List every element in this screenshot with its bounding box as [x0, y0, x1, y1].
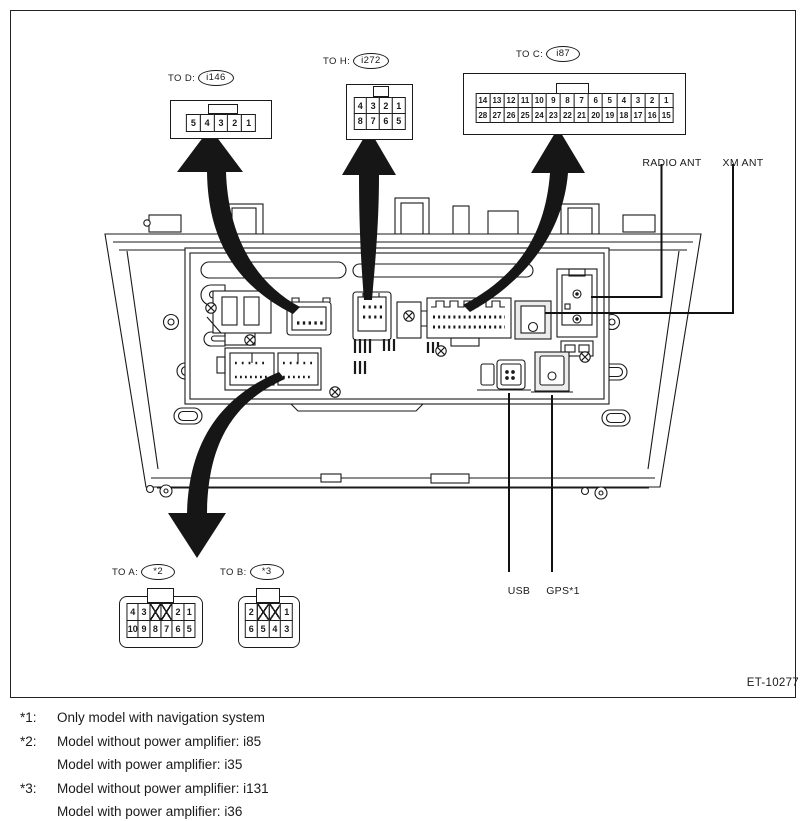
pin-cell: 25 [517, 107, 532, 123]
pin-cell: 5 [392, 113, 406, 130]
wiring-diagram-page: TO D: i146 54321 TO H: i272 43218765 TO … [0, 0, 804, 821]
footnote-row: *3:Model without power amplifier: i131Mo… [20, 777, 269, 821]
pin-cell: 23 [546, 107, 561, 123]
pin-cell: 8 [560, 93, 575, 109]
footnote-lines: Only model with navigation system [57, 706, 265, 730]
connector-h-to-label: TO H: [323, 56, 350, 67]
connector-c-pinout: 1413121110987654321282726252423222120191… [463, 73, 686, 135]
connector-a-to-label: TO A: [112, 567, 138, 578]
pin-cell: 9 [546, 93, 561, 109]
pin-row: 4321 [126, 603, 195, 621]
pin-cell: 1 [392, 97, 406, 114]
pin-row: 6543 [245, 620, 293, 638]
footnote-line: Only model with navigation system [57, 706, 265, 730]
pin-cell: 14 [475, 93, 490, 109]
pin-cell: 2 [644, 93, 659, 109]
pin-cell: 5 [602, 93, 617, 109]
pin-cell: 13 [489, 93, 504, 109]
pin-cell: 24 [532, 107, 547, 123]
unit-connector-xm-ant [515, 301, 551, 339]
footnote-marker: *3: [20, 777, 57, 821]
footnote-line: Model without power amplifier: i131 [57, 777, 269, 801]
pin-cell: 15 [659, 107, 674, 123]
connector-a-ref-oval: *2 [141, 564, 175, 580]
connector-h-ref-oval: i272 [353, 53, 389, 69]
figure-id: ET-10277 [651, 677, 799, 689]
pin-cell: 27 [489, 107, 504, 123]
pin-cell: 6 [588, 93, 603, 109]
pin-cell: 3 [214, 114, 229, 132]
connector-b-pins: 216543 [245, 603, 293, 638]
pin-cell: 20 [588, 107, 603, 123]
connector-c-to-label: TO C: [516, 49, 543, 60]
diagram-border-frame: TO D: i146 54321 TO H: i272 43218765 TO … [10, 10, 796, 698]
pin-cell: 4 [200, 114, 215, 132]
pin-cell: 1 [241, 114, 256, 132]
footnote-line: Model with power amplifier: i35 [57, 753, 261, 777]
pin-row: 8765 [353, 113, 405, 130]
footnote-row: *2:Model without power amplifier: i85Mod… [20, 730, 269, 777]
pin-cell: 7 [574, 93, 589, 109]
pin-row: 1413121110987654321 [475, 93, 674, 109]
pin-cell: 22 [560, 107, 575, 123]
unit-connector-gps [531, 352, 573, 392]
connector-a-caption: TO A: *2 [112, 564, 175, 580]
radio-ant-label: RADIO ANT [637, 157, 707, 169]
footnote-marker: *1: [20, 706, 57, 730]
pin-cell: 5 [183, 620, 196, 638]
footnotes: *1:Only model with navigation system*2:M… [20, 706, 269, 821]
pin-cell: 3 [280, 620, 293, 638]
connector-d-pins: 54321 [186, 114, 256, 132]
pin-cell: 12 [503, 93, 518, 109]
connector-c-ref-oval: i87 [546, 46, 580, 62]
connector-a-pinout: 43211098765 [119, 596, 203, 648]
usb-label: USB [505, 585, 533, 597]
connector-c-pins: 1413121110987654321282726252423222120191… [475, 93, 674, 123]
connector-h-pinout: 43218765 [346, 84, 413, 140]
pin-cell: 17 [630, 107, 645, 123]
connector-c-caption: TO C: i87 [516, 46, 580, 62]
connector-b-caption: TO B: *3 [220, 564, 284, 580]
pin-row: 4321 [353, 97, 405, 114]
connector-d-caption: TO D: i146 [168, 70, 234, 86]
connector-d-pinout: 54321 [170, 100, 272, 139]
gps-label: GPS*1 [542, 585, 584, 597]
connector-b-key-tab [256, 588, 280, 603]
unit-connector-usb [477, 360, 531, 390]
pin-cell: 28 [475, 107, 490, 123]
pin-cell: 21 [574, 107, 589, 123]
pin-cell: 1 [659, 93, 674, 109]
pin-cell: 11 [517, 93, 532, 109]
pin-cell: 26 [503, 107, 518, 123]
connector-d-to-label: TO D: [168, 73, 195, 84]
connector-b-pinout: 216543 [238, 596, 300, 648]
footnote-lines: Model without power amplifier: i85Model … [57, 730, 261, 777]
connector-b-ref-oval: *3 [250, 564, 284, 580]
connector-h-pins: 43218765 [353, 97, 405, 130]
pin-cell: 10 [532, 93, 547, 109]
connector-h-key-tab [373, 86, 389, 97]
pin-cell: 1 [280, 603, 293, 621]
xm-ant-label: XM ANT [720, 157, 766, 169]
pin-row: 2827262524232221201918171615 [475, 107, 674, 123]
footnote-row: *1:Only model with navigation system [20, 706, 269, 730]
pin-cell: 19 [602, 107, 617, 123]
connector-a-pins: 43211098765 [126, 603, 195, 638]
footnote-line: Model without power amplifier: i85 [57, 730, 261, 754]
pin-row: 21 [245, 603, 293, 621]
footnote-lines: Model without power amplifier: i131Model… [57, 777, 269, 821]
connector-h-caption: TO H: i272 [323, 53, 389, 69]
bracket-with-bars [207, 291, 271, 333]
pin-cell: 18 [616, 107, 631, 123]
pin-cell: 3 [630, 93, 645, 109]
pin-row: 1098765 [126, 620, 195, 638]
pin-row: 54321 [186, 114, 256, 132]
pin-cell: 16 [644, 107, 659, 123]
connector-d-ref-oval: i146 [198, 70, 234, 86]
footnote-line: Model with power amplifier: i36 [57, 800, 269, 821]
pin-cell: 4 [616, 93, 631, 109]
connector-d-key-tab [208, 104, 238, 114]
pin-cell: 5 [186, 114, 201, 132]
connector-a-key-tab [147, 588, 174, 603]
pin-cell: 2 [227, 114, 242, 132]
footnote-marker: *2: [20, 730, 57, 777]
pin-cell: 1 [183, 603, 196, 621]
connector-b-to-label: TO B: [220, 567, 247, 578]
